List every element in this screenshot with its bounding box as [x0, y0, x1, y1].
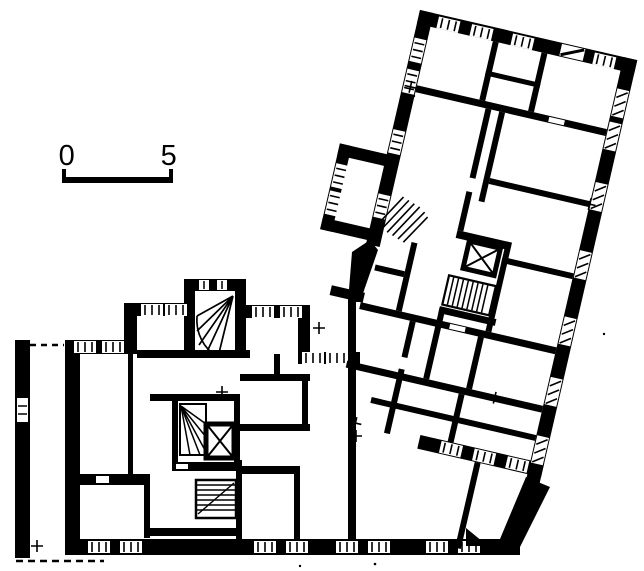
scale-bracket: [62, 169, 173, 180]
floor-plan-drawing: 0 5: [0, 0, 644, 571]
winder-stair-icon: [180, 404, 206, 455]
left-wing: [15, 240, 520, 561]
right-wing: [257, 0, 637, 563]
floor-plan-page: 0 5: [0, 0, 644, 571]
corner-connector: [500, 477, 550, 555]
elevator-x-icon: [463, 241, 500, 275]
scale-bar: 0 5: [59, 140, 178, 180]
stair-treads-icon: [196, 480, 236, 518]
scale-end-label: 5: [161, 140, 178, 172]
balcony-strip: [15, 340, 104, 561]
print-noise: [237, 95, 605, 567]
chimney-flue-icon: [559, 44, 585, 61]
scale-start-label: 0: [59, 140, 76, 172]
winder-stair-icon: [197, 296, 233, 357]
elevator-x-icon: [206, 424, 234, 458]
